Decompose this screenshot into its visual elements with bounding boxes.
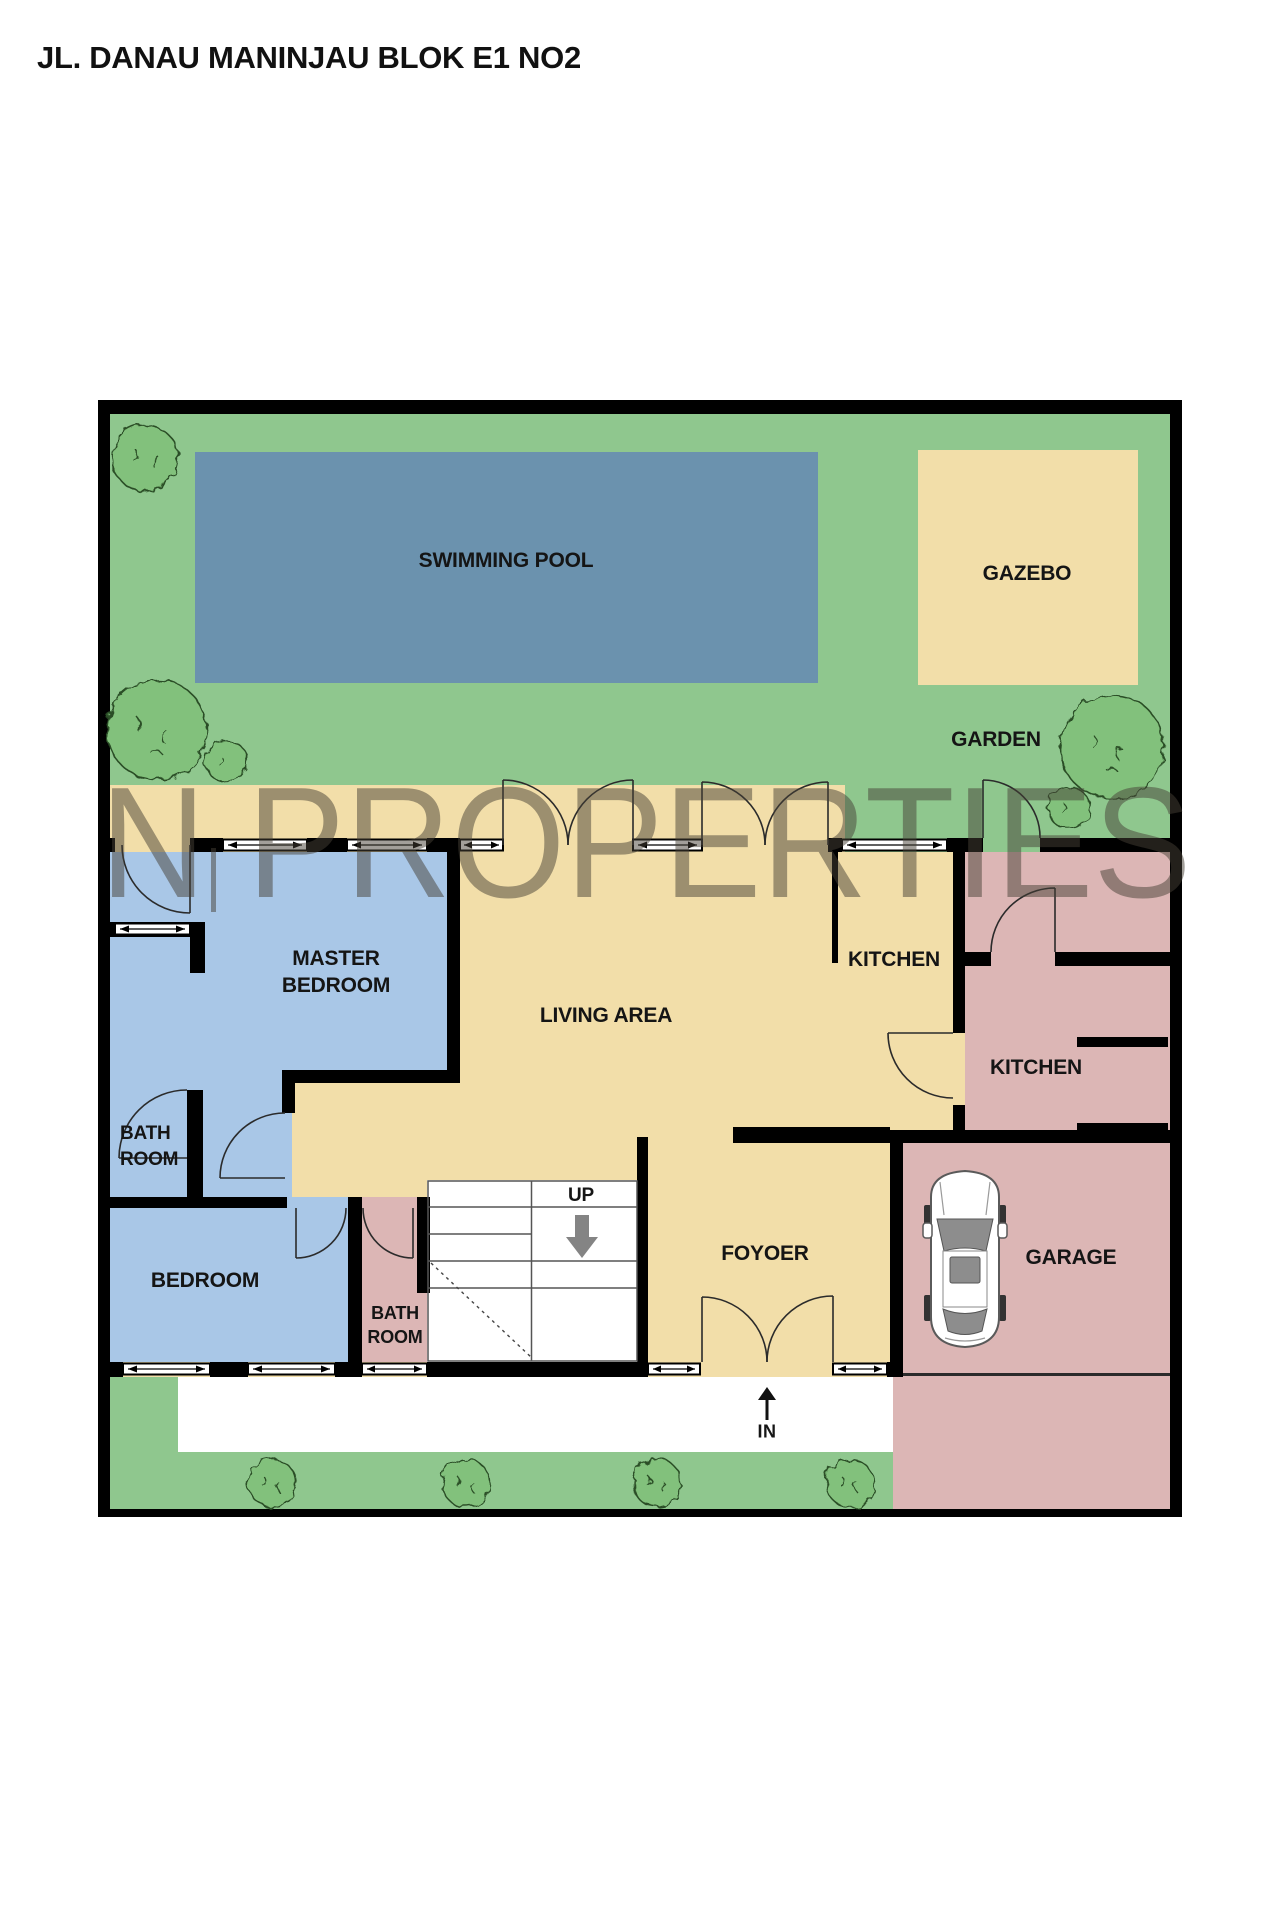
stairs bbox=[428, 1181, 637, 1361]
stairs-down-arrow-icon bbox=[566, 1215, 598, 1258]
garden-label: GARDEN bbox=[951, 728, 1041, 752]
entry-arrow-icon bbox=[758, 1387, 776, 1420]
stairs-up-label: UP bbox=[568, 1185, 594, 1207]
master-bathroom-label: BATH ROOM bbox=[120, 1121, 196, 1173]
kitchen-upper-label: KITCHEN bbox=[848, 948, 940, 972]
foyer-label: FOYOER bbox=[721, 1242, 808, 1266]
garage-label: GARAGE bbox=[1026, 1246, 1117, 1270]
door-arc bbox=[119, 780, 1055, 1362]
kitchen-service-label: KITCHEN bbox=[990, 1056, 1082, 1080]
page-title: JL. DANAU MANINJAU BLOK E1 NO2 bbox=[37, 40, 581, 76]
entrance-in-label: IN bbox=[758, 1422, 777, 1443]
gazebo-label: GAZEBO bbox=[983, 562, 1072, 586]
car-icon bbox=[923, 1171, 1007, 1347]
swimming-pool-label: SWIMMING POOL bbox=[419, 549, 594, 573]
bush-icon bbox=[442, 1459, 490, 1507]
floor-plan: SWIMMING POOL GAZEBO GARDEN MASTER BEDRO… bbox=[98, 400, 1182, 1517]
bedroom-label: BEDROOM bbox=[151, 1269, 259, 1293]
tree-icon bbox=[112, 425, 178, 491]
bush-icon bbox=[633, 1459, 681, 1507]
tree-icon bbox=[205, 740, 247, 782]
bush-icon bbox=[826, 1459, 874, 1507]
page: JL. DANAU MANINJAU BLOK E1 NO2 bbox=[0, 0, 1280, 1920]
watermark-divider bbox=[211, 848, 216, 912]
bush-icon bbox=[248, 1459, 296, 1507]
tree-icon bbox=[107, 680, 207, 780]
master-bedroom-label: MASTER BEDROOM bbox=[271, 945, 401, 999]
shared-bathroom-label: BATH ROOM bbox=[363, 1301, 427, 1349]
living-area-label: LIVING AREA bbox=[540, 1004, 672, 1028]
tree-icon bbox=[1048, 787, 1090, 829]
tree-icon bbox=[1060, 695, 1164, 799]
